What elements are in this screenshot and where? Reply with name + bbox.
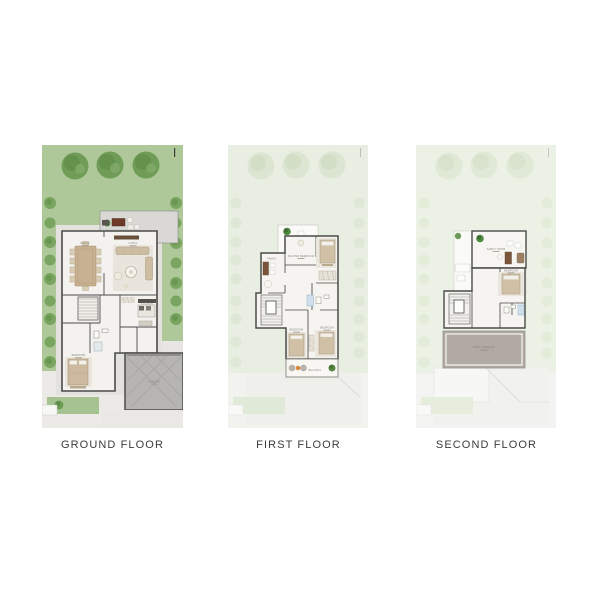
bathtub bbox=[518, 305, 524, 315]
grill bbox=[102, 220, 109, 226]
north-tick bbox=[548, 148, 549, 157]
bathtub bbox=[307, 295, 314, 306]
room-label-bedroom-left: BEDROOM bbox=[290, 329, 304, 332]
staircase bbox=[261, 295, 282, 325]
tv-console bbox=[114, 236, 139, 240]
bed bbox=[315, 330, 336, 357]
room-label-garage: GARAGE bbox=[148, 381, 160, 384]
plant-icon bbox=[455, 233, 461, 239]
floor-label-first: FIRST FLOOR bbox=[228, 439, 369, 451]
first-floor-plan: MASTER BEDROOM FAMILY BEDROOM BEDROOM BA… bbox=[228, 145, 369, 451]
floorplan-sheet: DINING LIVING KITCHEN BEDROOM GARAGE GRO… bbox=[0, 0, 600, 600]
north-tick bbox=[174, 148, 175, 157]
room-label-balcony: BALCONY bbox=[309, 369, 322, 372]
wardrobe bbox=[309, 335, 314, 351]
tree-icon bbox=[133, 152, 160, 179]
closet bbox=[121, 297, 135, 303]
room-label-bedroom: BEDROOM bbox=[504, 269, 518, 272]
room-label-living: LIVING bbox=[128, 242, 137, 245]
desk bbox=[263, 262, 269, 275]
room-label-bedroom: BEDROOM bbox=[72, 354, 86, 357]
tree-icons bbox=[62, 152, 160, 180]
tree-icon bbox=[97, 152, 124, 179]
staircase bbox=[449, 294, 470, 324]
closet bbox=[319, 271, 336, 280]
roof-terrace: ROOF TERRACE bbox=[443, 331, 525, 368]
room-label-lounge: FAMILY bbox=[267, 258, 277, 261]
staircase bbox=[78, 297, 98, 320]
faded-tree-icons bbox=[436, 152, 534, 180]
entry-structure bbox=[42, 405, 57, 415]
room-label-kitchen: KITCHEN bbox=[141, 302, 153, 305]
bed bbox=[287, 332, 306, 358]
desk bbox=[505, 252, 512, 264]
room-label-dining: DINING bbox=[80, 242, 90, 245]
room-label-bedroom-right: BEDROOM bbox=[320, 327, 334, 330]
bed bbox=[498, 272, 524, 296]
armchair bbox=[517, 253, 524, 263]
second-floor-drawing: ROOF TERRACE FAMILY ROOM BEDROOM bbox=[416, 145, 556, 428]
driveway bbox=[102, 410, 183, 428]
room-label-master: MASTER BEDROOM bbox=[288, 255, 314, 258]
room-label-family: FAMILY ROOM bbox=[487, 248, 506, 251]
room-label-roof-terrace: ROOF TERRACE bbox=[473, 346, 495, 349]
garden-strip bbox=[42, 397, 99, 415]
planter-orange bbox=[296, 366, 301, 371]
floor-label-ground: GROUND FLOOR bbox=[42, 439, 183, 451]
bed bbox=[65, 357, 92, 389]
first-floor-drawing: MASTER BEDROOM FAMILY BEDROOM BEDROOM BA… bbox=[228, 145, 368, 428]
second-floor-plan: ROOF TERRACE FAMILY ROOM BEDROOM SECOND … bbox=[416, 145, 557, 451]
north-tick bbox=[360, 148, 361, 157]
floor-label-second: SECOND FLOOR bbox=[416, 439, 557, 451]
ground-floor-plan: DINING LIVING KITCHEN BEDROOM GARAGE GRO… bbox=[42, 145, 183, 451]
faded-tree-icons bbox=[248, 152, 346, 180]
bbq-table bbox=[112, 219, 125, 227]
ground-floor-drawing: DINING LIVING KITCHEN BEDROOM GARAGE bbox=[42, 145, 183, 428]
tree-icon bbox=[62, 153, 89, 180]
